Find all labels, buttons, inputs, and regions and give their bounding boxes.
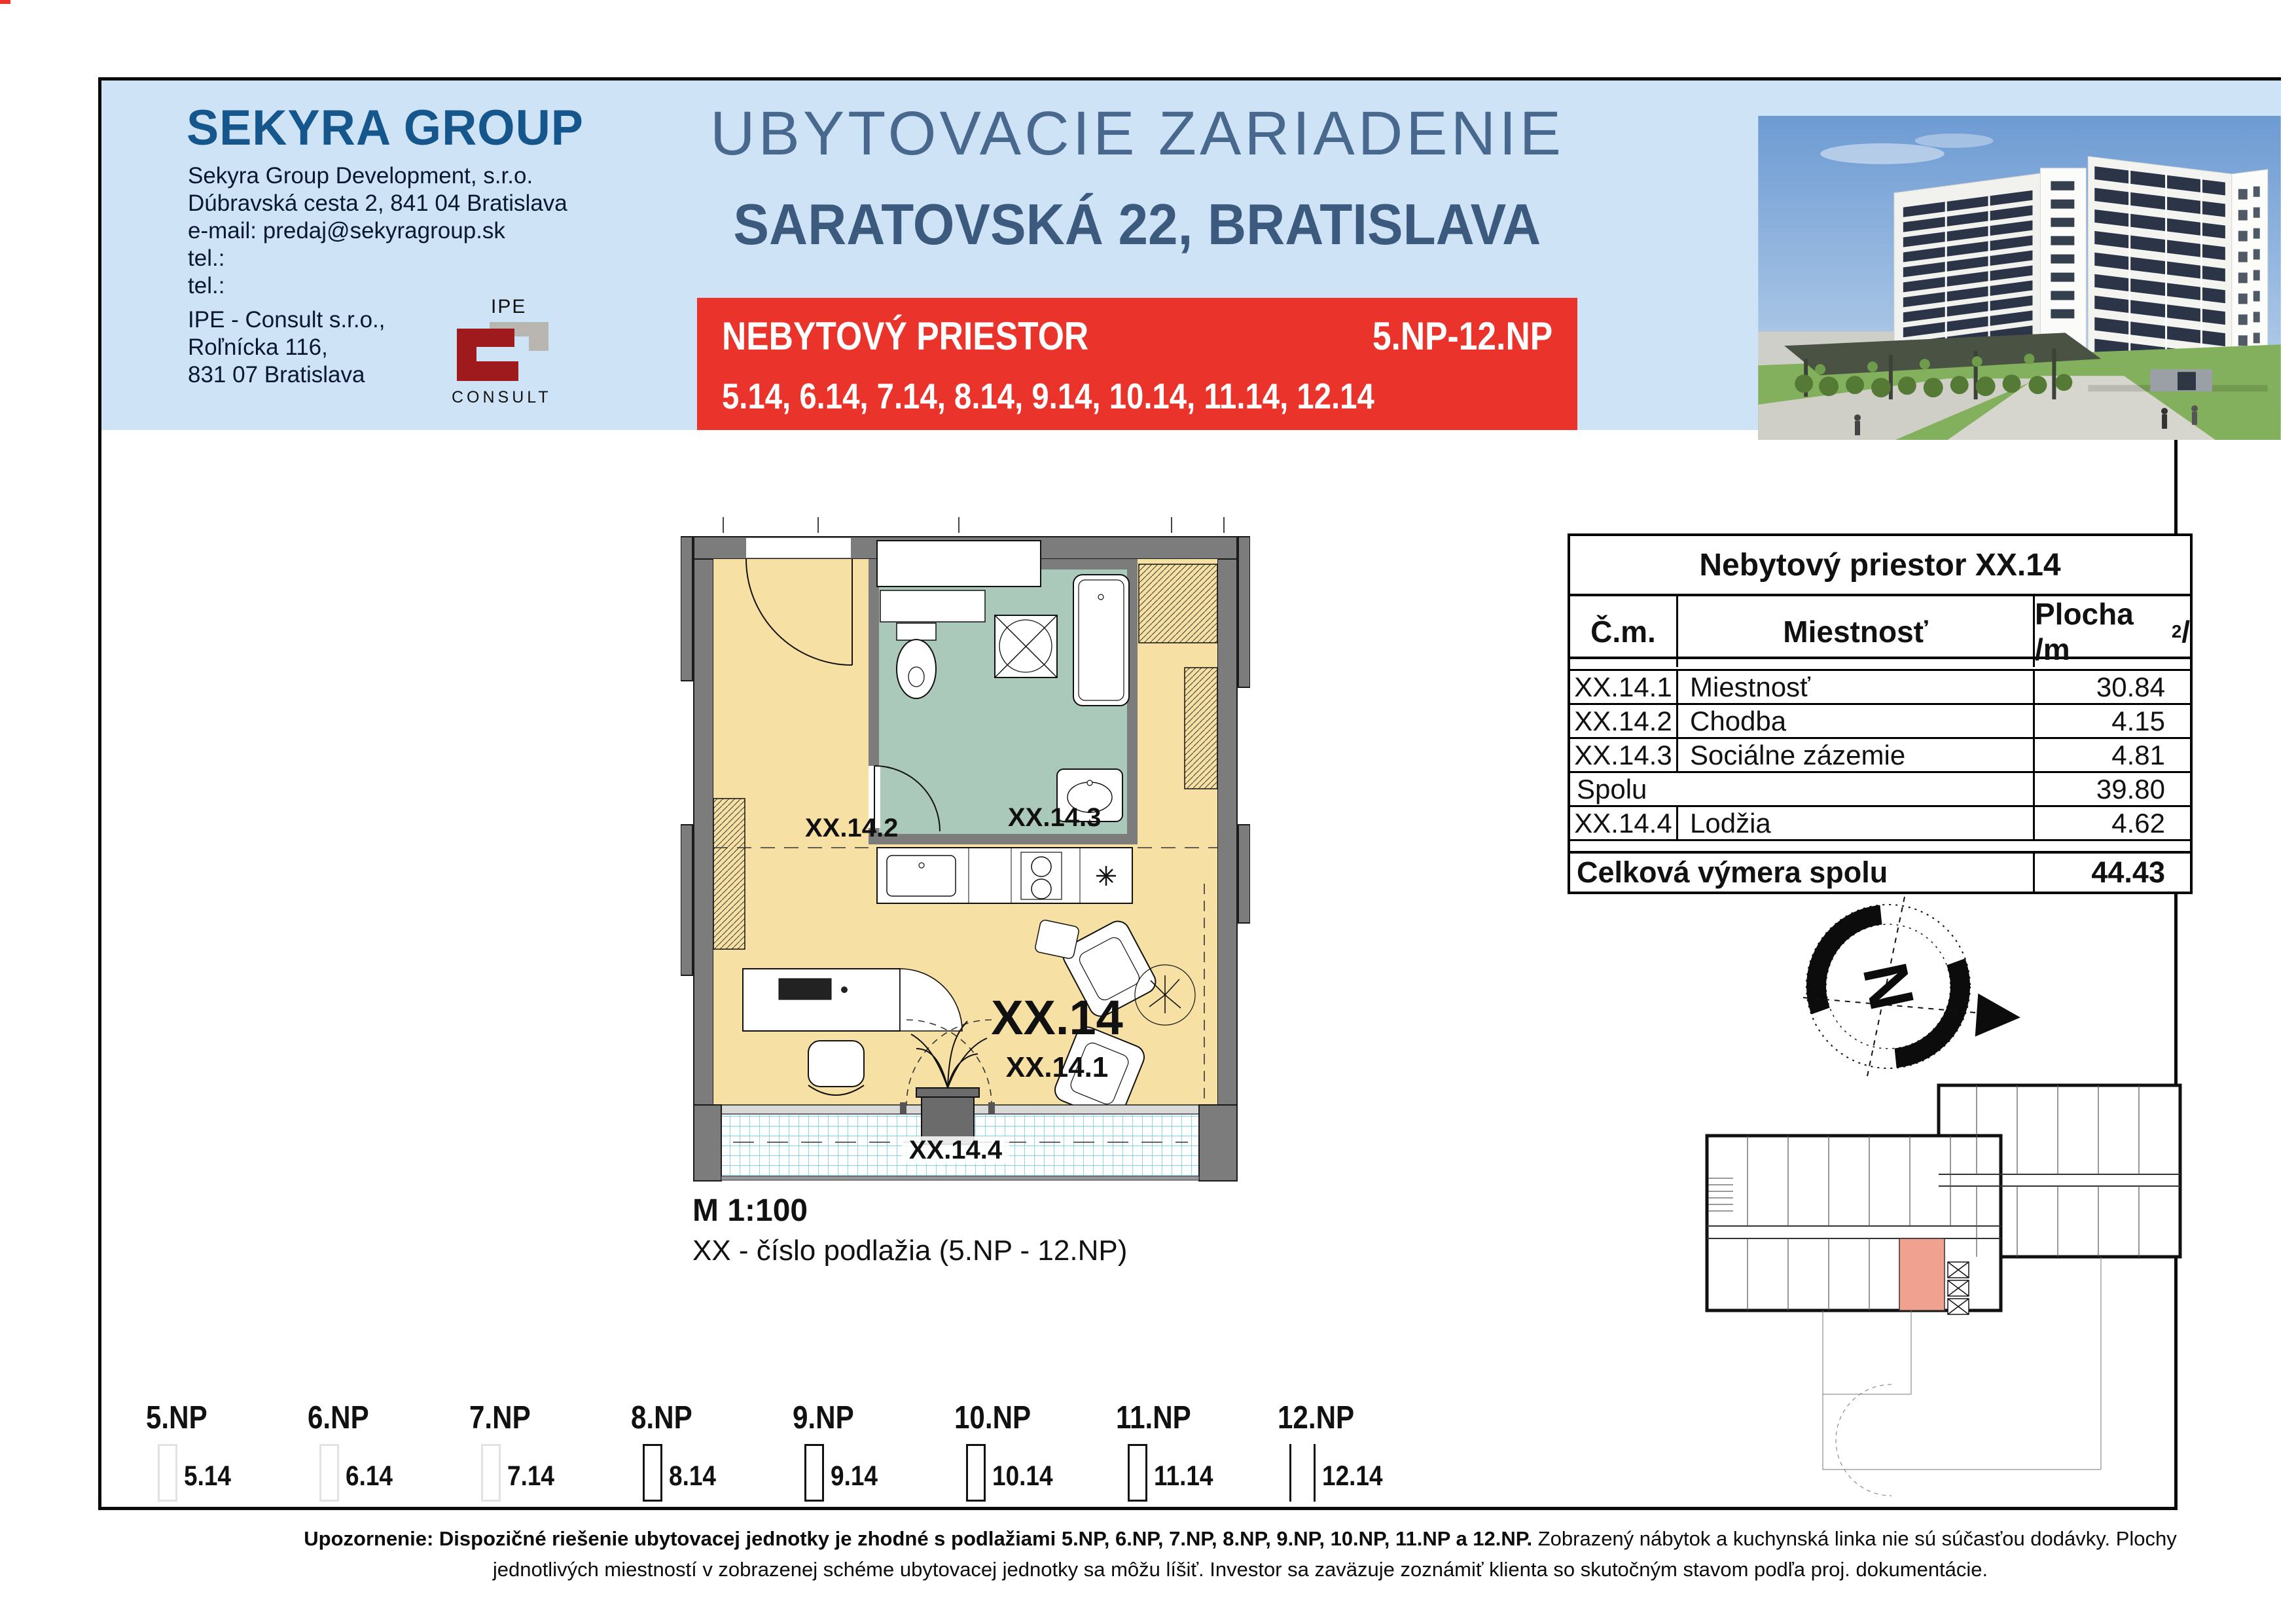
bathtub-icon bbox=[1073, 575, 1129, 706]
floor-box-icon bbox=[643, 1444, 662, 1502]
stove-icon bbox=[1021, 852, 1062, 899]
floor-number-note: XX - číslo podlažia (5.NP - 12.NP) bbox=[692, 1235, 1127, 1267]
floor-item-12np[interactable]: 12.NP 12.14 bbox=[1259, 1399, 1421, 1502]
ipe-logo-icon bbox=[452, 318, 550, 384]
floor-box-icon bbox=[966, 1444, 986, 1502]
ipe-logo-subtext: CONSULT bbox=[452, 388, 563, 407]
area-table-title: Nebytový priestor XX.14 bbox=[1570, 536, 2190, 596]
floor-item-10np[interactable]: 10.NP 10.14 bbox=[936, 1399, 1098, 1502]
floor-item-11np[interactable]: 11.NP 11.14 bbox=[1098, 1399, 1259, 1502]
col-header-cm: Č.m. bbox=[1570, 596, 1678, 667]
kitchen-counter bbox=[877, 848, 1132, 903]
shower-icon bbox=[995, 615, 1057, 677]
company-line: Dúbravská cesta 2, 841 04 Bratislava bbox=[188, 190, 567, 217]
table-row: XX.14.1 Miestnosť 30.84 bbox=[1570, 671, 2190, 705]
label-unit: XX.14 bbox=[991, 990, 1123, 1045]
banner-floor-range: 5.NP-12.NP bbox=[1372, 314, 1552, 359]
disclaimer-bold: Upozornenie: Dispozičné riešenie ubytova… bbox=[304, 1527, 1532, 1550]
dimension-ticks bbox=[723, 517, 1224, 533]
company-line: e-mail: predaj@sekyragroup.sk bbox=[188, 217, 567, 245]
floor-box-icon bbox=[1289, 1444, 1316, 1502]
toilet-icon bbox=[897, 623, 936, 698]
label-room: XX.14.1 bbox=[1006, 1051, 1109, 1083]
area-table: Nebytový priestor XX.14 Č.m. Miestnosť P… bbox=[1568, 533, 2193, 894]
red-banner: NEBYTOVÝ PRIESTOR 5.NP-12.NP 5.14, 6.14,… bbox=[697, 298, 1577, 430]
ipe-consult-logo: IPE CONSULT bbox=[452, 296, 563, 407]
floor-box-icon bbox=[804, 1444, 824, 1502]
consultant-line: 831 07 Bratislava bbox=[188, 361, 386, 389]
kitchen-sink-icon bbox=[887, 856, 956, 896]
entrance-opening bbox=[746, 538, 851, 558]
north-arrow-compass: N bbox=[1784, 885, 2026, 1101]
elevators bbox=[1948, 1262, 1969, 1314]
sekyra-group-logo: SEKYRA GROUP bbox=[187, 99, 584, 156]
floor-box-icon bbox=[319, 1444, 339, 1502]
company-line: Sekyra Group Development, s.r.o. bbox=[188, 162, 567, 190]
label-loggia: XX.14.4 bbox=[909, 1136, 1003, 1164]
ipe-logo-text: IPE bbox=[491, 296, 563, 318]
consultant-line: Roľnícka 116, bbox=[188, 334, 386, 361]
consultant-line: IPE - Consult s.r.o., bbox=[188, 306, 386, 334]
table-row: XX.14.2 Chodba 4.15 bbox=[1570, 705, 2190, 739]
scan-corner-mark bbox=[0, 0, 10, 4]
label-bath: XX.14.3 bbox=[1008, 803, 1101, 832]
table-subtotal-row: Spolu 39.80 bbox=[1570, 773, 2190, 807]
floor-box-icon bbox=[481, 1444, 501, 1502]
document-page: SEKYRA GROUP Sekyra Group Development, s… bbox=[0, 0, 2296, 1624]
highlighted-unit bbox=[1899, 1238, 1945, 1310]
compass-north-letter: N bbox=[1849, 957, 1927, 1016]
table-row: XX.14.3 Sociálne zázemie 4.81 bbox=[1570, 739, 2190, 773]
banner-left-label: NEBYTOVÝ PRIESTOR bbox=[722, 314, 1088, 359]
banner-unit-list: 5.14, 6.14, 7.14, 8.14, 9.14, 10.14, 11.… bbox=[722, 375, 1374, 417]
shaft bbox=[877, 541, 1041, 586]
floor-item-9np[interactable]: 9.NP 9.14 bbox=[774, 1399, 936, 1502]
floor-selector: 5.NP 5.14 6.NP 6.14 7.NP 7.14 8.NP 8.14 … bbox=[128, 1399, 1421, 1502]
floor-item-8np[interactable]: 8.NP 8.14 bbox=[613, 1399, 774, 1502]
col-header-room: Miestnosť bbox=[1678, 596, 2035, 667]
floor-box-icon bbox=[158, 1444, 177, 1502]
label-hall: XX.14.2 bbox=[805, 814, 898, 842]
page-title: UBYTOVACIE ZARIADENIE bbox=[697, 98, 1577, 170]
building-render-image bbox=[1758, 116, 2281, 440]
floor-item-6np[interactable]: 6.NP 6.14 bbox=[289, 1399, 451, 1502]
disclaimer: Upozornenie: Dispozičné riešenie ubytova… bbox=[301, 1524, 2179, 1585]
col-header-area: Plocha /m2/ bbox=[2035, 596, 2190, 667]
compass-arrow bbox=[1975, 994, 2022, 1040]
consultant-address: IPE - Consult s.r.o., Roľnícka 116, 831 … bbox=[188, 306, 386, 389]
unit-floor-plan: XX.14.2 XX.14.3 XX.14 XX.14.1 XX.14.4 bbox=[681, 517, 1250, 1191]
table-spacer bbox=[1570, 841, 2190, 854]
area-table-header: Č.m. Miestnosť Plocha /m2/ bbox=[1570, 596, 2190, 659]
table-row: XX.14.4 Lodžia 4.62 bbox=[1570, 807, 2190, 841]
company-line: tel.: bbox=[188, 245, 567, 272]
floor-item-7np[interactable]: 7.NP 7.14 bbox=[451, 1399, 613, 1502]
floor-box-icon bbox=[1128, 1444, 1147, 1502]
company-address: Sekyra Group Development, s.r.o. Dúbravs… bbox=[188, 162, 567, 300]
plan-scale: M 1:100 bbox=[692, 1193, 808, 1229]
page-subtitle: SARATOVSKÁ 22, BRATISLAVA bbox=[697, 191, 1577, 258]
site-plan bbox=[1689, 1074, 2186, 1512]
floor-item-5np[interactable]: 5.NP 5.14 bbox=[128, 1399, 289, 1502]
